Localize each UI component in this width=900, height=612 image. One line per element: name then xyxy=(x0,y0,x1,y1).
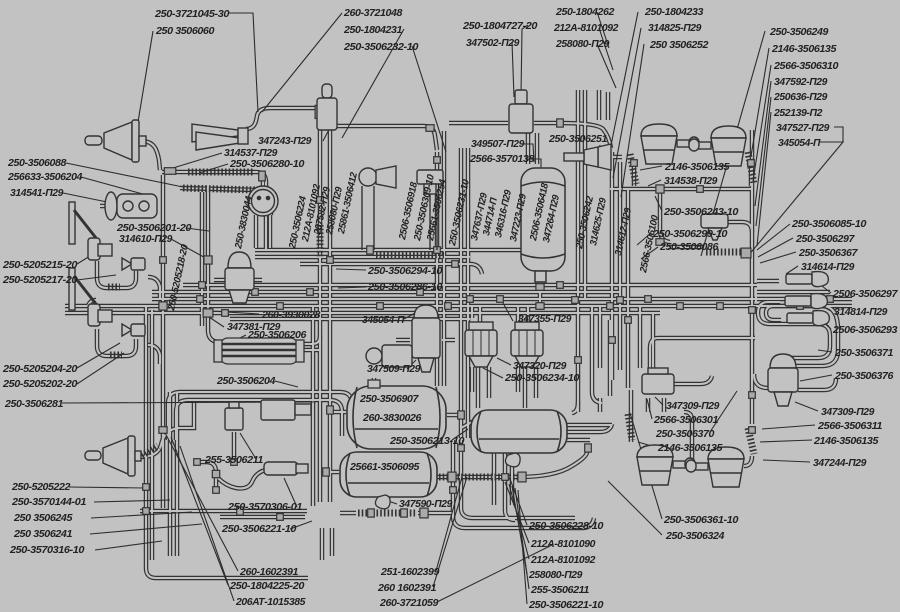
svg-text:260-3721059: 260-3721059 xyxy=(379,598,439,609)
svg-text:347244-П29: 347244-П29 xyxy=(813,458,867,469)
svg-text:2506-3506293: 2506-3506293 xyxy=(832,325,898,336)
svg-text:255-3506211: 255-3506211 xyxy=(530,585,590,596)
svg-text:2566-3506310: 2566-3506310 xyxy=(773,61,839,72)
svg-text:250-3506251: 250-3506251 xyxy=(548,134,608,145)
svg-text:250-3506299-10: 250-3506299-10 xyxy=(652,229,728,240)
svg-text:250-3506088: 250-3506088 xyxy=(7,158,67,169)
svg-text:314825-П29: 314825-П29 xyxy=(648,23,702,34)
svg-text:250-3506232-10: 250-3506232-10 xyxy=(343,42,419,53)
svg-text:260 1602391: 260 1602391 xyxy=(377,583,437,594)
svg-text:250-3506201-20: 250-3506201-20 xyxy=(116,223,192,234)
svg-text:347309-П29: 347309-П29 xyxy=(666,401,720,412)
svg-text:250-3506213-10: 250-3506213-10 xyxy=(389,436,465,447)
svg-text:347243-П29: 347243-П29 xyxy=(258,136,312,147)
svg-text:258080-П29: 258080-П29 xyxy=(555,39,610,50)
svg-text:250-3506086: 250-3506086 xyxy=(659,242,719,253)
svg-text:260-3830026: 260-3830026 xyxy=(362,413,422,424)
svg-text:250-3570144-01: 250-3570144-01 xyxy=(11,497,87,508)
svg-text:250-5205217-20: 250-5205217-20 xyxy=(2,275,78,286)
svg-text:250-5205215-20: 250-5205215-20 xyxy=(2,260,78,271)
svg-text:250-3506085-10: 250-3506085-10 xyxy=(791,219,867,230)
svg-text:250-1804231: 250-1804231 xyxy=(343,25,403,36)
svg-text:250-3506221-10: 250-3506221-10 xyxy=(221,524,297,535)
svg-text:250-3506371: 250-3506371 xyxy=(834,348,894,359)
svg-text:345054-П: 345054-П xyxy=(778,138,821,149)
svg-text:260-3930028: 260-3930028 xyxy=(261,310,321,321)
svg-text:250-3506280-10: 250-3506280-10 xyxy=(229,159,305,170)
svg-text:2146-3506135: 2146-3506135 xyxy=(813,436,879,447)
svg-text:250-3506367: 250-3506367 xyxy=(798,248,859,259)
svg-text:314614-П29: 314614-П29 xyxy=(801,262,855,273)
svg-text:2506-3506297: 2506-3506297 xyxy=(832,289,899,300)
svg-text:250-3506249: 250-3506249 xyxy=(769,27,829,38)
svg-text:250-3506234-10: 250-3506234-10 xyxy=(504,373,580,384)
svg-text:260-3721048: 260-3721048 xyxy=(343,8,403,19)
svg-text:2566-3506301: 2566-3506301 xyxy=(653,415,719,426)
svg-text:250-1804233: 250-1804233 xyxy=(644,7,704,18)
svg-text:250 3506252: 250 3506252 xyxy=(649,40,709,51)
svg-text:347509-П29: 347509-П29 xyxy=(367,364,421,375)
svg-text:347527-П29: 347527-П29 xyxy=(776,123,830,134)
svg-text:258080-П29: 258080-П29 xyxy=(528,570,583,581)
svg-text:347355-П29: 347355-П29 xyxy=(518,314,572,325)
svg-text:250-3506243-10: 250-3506243-10 xyxy=(663,207,739,218)
svg-text:250-5205202-20: 250-5205202-20 xyxy=(2,379,78,390)
svg-text:256633-3506204: 256633-3506204 xyxy=(7,172,83,183)
svg-text:314538-П29: 314538-П29 xyxy=(664,176,718,187)
svg-text:212А-8101092: 212А-8101092 xyxy=(553,23,619,34)
svg-text:250-3506294-10: 250-3506294-10 xyxy=(367,266,443,277)
svg-text:212А-8101092: 212А-8101092 xyxy=(530,555,596,566)
svg-text:347320-П29: 347320-П29 xyxy=(513,361,567,372)
svg-text:314537-П29: 314537-П29 xyxy=(224,148,278,159)
svg-text:251-1602399: 251-1602399 xyxy=(380,567,440,578)
svg-text:347592-П29: 347592-П29 xyxy=(774,77,828,88)
svg-text:250-3570316-10: 250-3570316-10 xyxy=(9,545,85,556)
svg-text:250636-П29: 250636-П29 xyxy=(773,92,828,103)
svg-text:250-5205204-20: 250-5205204-20 xyxy=(2,364,78,375)
svg-text:250-1804225-20: 250-1804225-20 xyxy=(229,581,305,592)
svg-text:345054-П: 345054-П xyxy=(362,315,405,326)
svg-text:250-3506370: 250-3506370 xyxy=(655,429,715,440)
svg-text:250 3506241: 250 3506241 xyxy=(13,529,73,540)
svg-text:250 3506245: 250 3506245 xyxy=(13,513,73,524)
svg-text:250-3506297: 250-3506297 xyxy=(795,234,856,245)
svg-text:250-3506907: 250-3506907 xyxy=(359,394,420,405)
svg-text:347309-П29: 347309-П29 xyxy=(821,407,875,418)
svg-text:2566-3506311: 2566-3506311 xyxy=(817,421,883,432)
svg-text:349507-П29: 349507-П29 xyxy=(471,139,525,150)
svg-text:314814-П29: 314814-П29 xyxy=(834,307,888,318)
svg-text:314541-П29: 314541-П29 xyxy=(10,188,64,199)
svg-text:250-3506286-10: 250-3506286-10 xyxy=(367,282,443,293)
svg-text:250-3506228-10: 250-3506228-10 xyxy=(528,521,604,532)
svg-text:250-3570306-01: 250-3570306-01 xyxy=(227,502,303,513)
svg-text:2566-3570138: 2566-3570138 xyxy=(469,154,535,165)
svg-text:2146-3506135: 2146-3506135 xyxy=(664,162,730,173)
svg-text:250-1804727-20: 250-1804727-20 xyxy=(462,21,538,32)
svg-text:252139-П2: 252139-П2 xyxy=(773,108,823,119)
svg-text:206АТ-1015385: 206АТ-1015385 xyxy=(235,597,306,608)
svg-text:347590-П29: 347590-П29 xyxy=(399,499,453,510)
svg-text:25661-3506095: 25661-3506095 xyxy=(349,462,420,473)
svg-text:250-3506204: 250-3506204 xyxy=(216,376,276,387)
svg-text:347502-П29: 347502-П29 xyxy=(466,38,520,49)
svg-text:250-3506281: 250-3506281 xyxy=(4,399,64,410)
svg-text:250-3506376: 250-3506376 xyxy=(834,371,894,382)
svg-text:255-3506211: 255-3506211 xyxy=(204,455,264,466)
svg-text:2146-3506135: 2146-3506135 xyxy=(657,443,723,454)
svg-text:250-3506324: 250-3506324 xyxy=(665,531,725,542)
svg-text:212А-8101090: 212А-8101090 xyxy=(530,539,596,550)
svg-text:250 3506060: 250 3506060 xyxy=(155,26,215,37)
svg-text:250-3506206: 250-3506206 xyxy=(247,330,307,341)
svg-text:250-1804262: 250-1804262 xyxy=(555,7,615,18)
svg-text:250-3506221-10: 250-3506221-10 xyxy=(528,600,604,611)
svg-text:250-3506361-10: 250-3506361-10 xyxy=(663,515,739,526)
svg-text:314610-П29: 314610-П29 xyxy=(119,234,173,245)
svg-text:260-1602391: 260-1602391 xyxy=(239,567,299,578)
svg-text:2146-3506135: 2146-3506135 xyxy=(771,44,837,55)
svg-text:250-3721045-30: 250-3721045-30 xyxy=(154,9,230,20)
svg-text:250-5205222: 250-5205222 xyxy=(11,482,71,493)
